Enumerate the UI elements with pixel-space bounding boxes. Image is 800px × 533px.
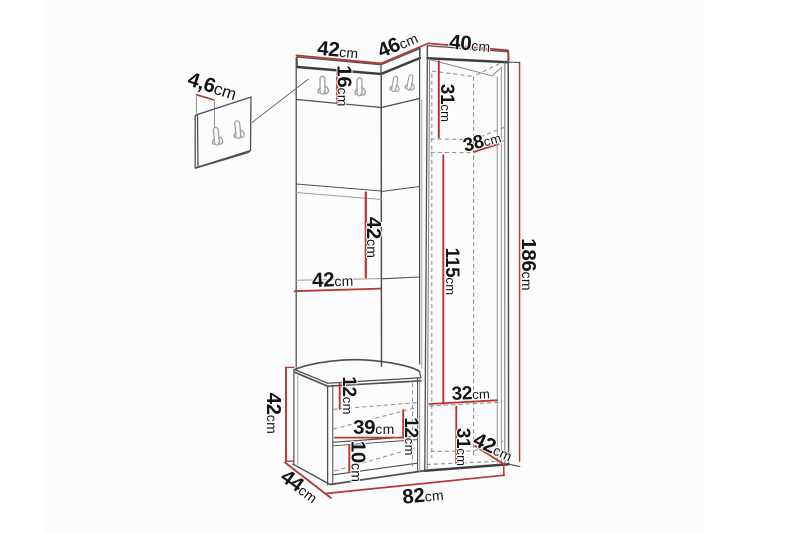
- svg-text:31cm: 31cm: [436, 84, 457, 122]
- svg-text:115cm: 115cm: [441, 248, 462, 296]
- svg-text:12cm: 12cm: [400, 417, 421, 455]
- svg-text:12cm: 12cm: [338, 376, 359, 414]
